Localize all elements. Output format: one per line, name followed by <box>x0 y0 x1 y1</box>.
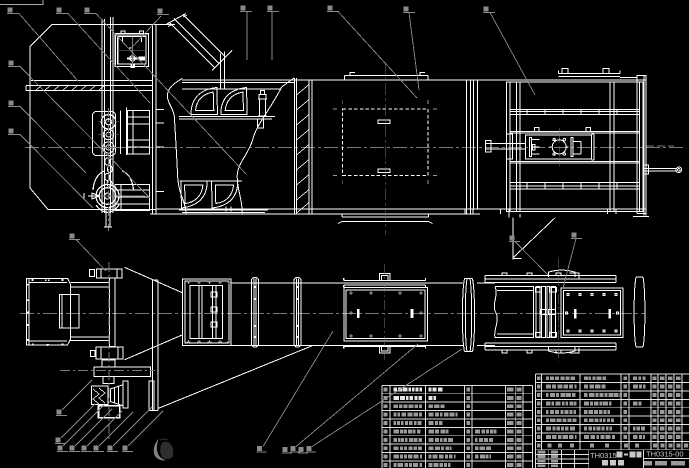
svg-text:TH0315-00: TH0315-00 <box>646 450 684 459</box>
svg-text:TH0315: TH0315 <box>590 451 617 460</box>
